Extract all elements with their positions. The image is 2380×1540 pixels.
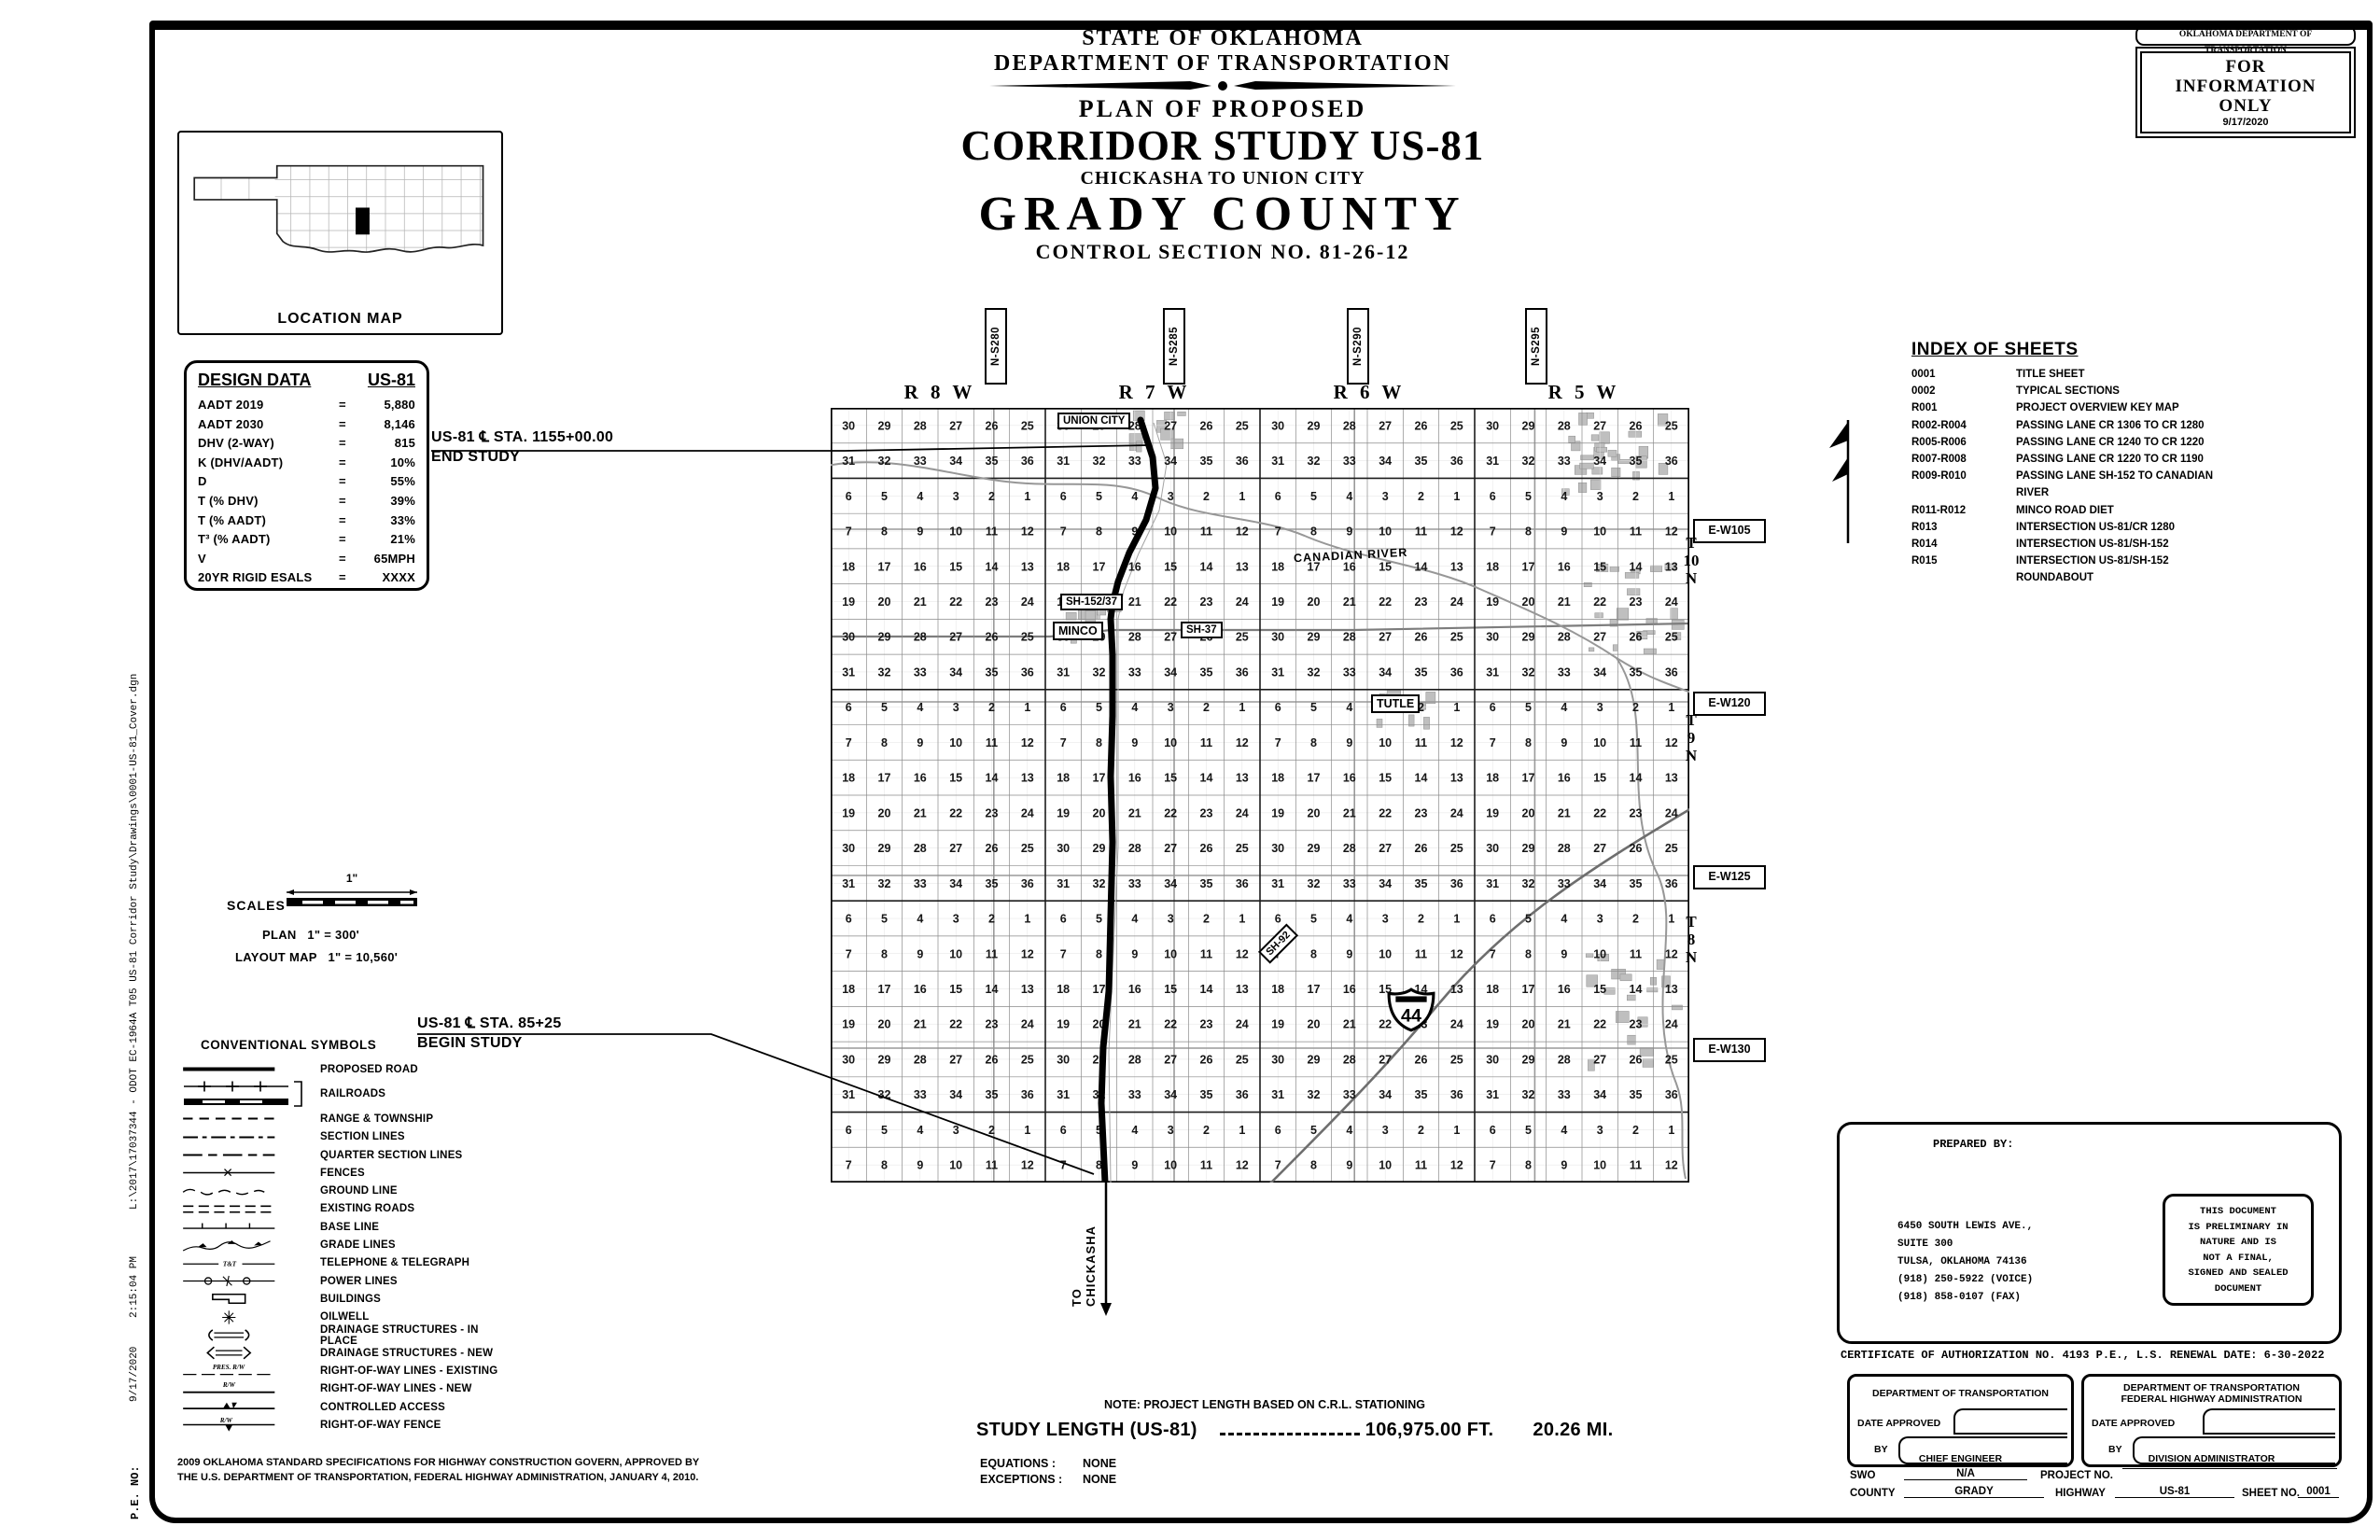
index-of-sheets: INDEX OF SHEETS 0001TITLE SHEET0002TYPIC… (1911, 340, 2219, 587)
ns-road-label: N-S280 (985, 308, 1007, 385)
row-existing-icon: PRES. R/W (180, 1363, 320, 1380)
section-number: 8 (1525, 1159, 1532, 1172)
county-value: GRADY (1904, 1486, 2044, 1498)
ns-road-text: N-S290 (1352, 327, 1364, 366)
section-number: 32 (1522, 455, 1535, 468)
section-number: 21 (1343, 595, 1356, 609)
section-number: 26 (986, 842, 999, 855)
section-number: 7 (1490, 525, 1496, 539)
section-number: 26 (1200, 419, 1213, 432)
legend-row: CONTROLLED ACCESS (180, 1398, 516, 1416)
section-number: 30 (1271, 1054, 1284, 1067)
section-number: 19 (1057, 1018, 1070, 1031)
section-number: 28 (1558, 1054, 1571, 1067)
section-number: 8 (1525, 525, 1532, 539)
legend-label: BASE LINE (320, 1222, 379, 1233)
section-number: 30 (1486, 419, 1499, 432)
prepared-by-box: PREPARED BY: 6450 SOUTH LEWIS AVE.,SUITE… (1837, 1122, 2342, 1344)
section-number: 36 (1236, 1088, 1249, 1101)
legend-row: BUILDINGS (180, 1290, 516, 1308)
design-data-row: AADT 2030=8,146 (198, 415, 415, 435)
legend-row: GRADE LINES (180, 1236, 516, 1253)
design-data-label: K (DHV/AADT) (198, 454, 339, 473)
section-number: 6 (1060, 913, 1067, 926)
section-number: 34 (1379, 1088, 1392, 1101)
study-note: NOTE: PROJECT LENGTH BASED ON C.R.L. STA… (1104, 1398, 1425, 1411)
section-number: 23 (986, 806, 999, 819)
section-number: 27 (1593, 419, 1606, 432)
study-length-feet: 106,975.00 FT. (1365, 1420, 1494, 1441)
section-number: 25 (1665, 1054, 1678, 1067)
section-number: 36 (1665, 1088, 1678, 1101)
section-number: 3 (1168, 913, 1174, 926)
section-number: 12 (1236, 736, 1249, 749)
design-data-label: AADT 2030 (198, 415, 339, 435)
design-data-table: DESIGN DATA US-81 AADT 2019=5,880AADT 20… (184, 360, 429, 591)
section-number: 28 (1558, 419, 1571, 432)
section-number: 35 (1200, 455, 1213, 468)
section-number: 21 (1558, 1018, 1571, 1031)
highway-label: HIGHWAY (2055, 1488, 2106, 1499)
svg-text:R/W: R/W (219, 1418, 233, 1425)
controlled-access-icon (180, 1398, 320, 1416)
design-data-value: 55% (354, 472, 415, 492)
section-number: 5 (1310, 1124, 1317, 1137)
section-number: 3 (953, 913, 959, 926)
section-number: 1 (1453, 701, 1460, 714)
section-number: 18 (1486, 983, 1499, 996)
legend-row: SECTION LINES (180, 1128, 516, 1146)
section-number: 18 (1486, 772, 1499, 785)
section-number: 10 (949, 1159, 962, 1172)
legend-label: EXISTING ROADS (320, 1203, 414, 1214)
union-city-label: UNION CITY (1057, 413, 1130, 429)
section-number: 35 (1630, 1088, 1643, 1101)
begin-study-text: BEGIN STUDY (417, 1033, 562, 1053)
index-sheet-number: R005-R006 (1911, 434, 2016, 451)
section-number: 7 (1060, 1159, 1067, 1172)
section-number: 15 (1164, 772, 1177, 785)
section-number: 35 (986, 666, 999, 679)
certificate-of-authorization: CERTIFICATE OF AUTHORIZATION NO. 4193 P.… (1841, 1349, 2345, 1362)
equations-value: NONE (1083, 1457, 1116, 1470)
design-data-value: 21% (354, 530, 415, 550)
legend-label: FENCES (320, 1168, 365, 1179)
section-number: 20 (1308, 806, 1321, 819)
section-number: 14 (1200, 560, 1213, 573)
section-number: 1 (1239, 701, 1245, 714)
section-number: 4 (1131, 490, 1138, 503)
section-number: 5 (1310, 913, 1317, 926)
disclaimer-line: NATURE AND IS (2165, 1235, 2311, 1251)
title-plan-of: PLAN OF PROPOSED (840, 95, 1605, 123)
section-number: 9 (1561, 736, 1567, 749)
section-number: 32 (1308, 666, 1321, 679)
exceptions-label: EXCEPTIONS : (980, 1473, 1083, 1486)
begin-study-station: US-81 ℄ STA. 85+25 (417, 1014, 562, 1033)
project-no-value (2122, 1468, 2337, 1469)
section-number: 9 (1131, 947, 1138, 960)
fhwa-date-field (2203, 1408, 2335, 1435)
section-number: 20 (878, 1018, 891, 1031)
title-block: STATE OF OKLAHOMA DEPARTMENT OF TRANSPOR… (840, 26, 1605, 264)
section-number: 16 (914, 560, 927, 573)
section-number: 24 (1021, 595, 1034, 609)
section-number: 21 (1343, 806, 1356, 819)
section-number: 12 (1021, 1159, 1034, 1172)
section-number: 3 (1597, 1124, 1603, 1137)
section-number: 28 (1128, 1054, 1141, 1067)
section-number: 17 (878, 772, 891, 785)
section-number: 26 (1200, 842, 1213, 855)
section-number: 10 (1164, 1159, 1177, 1172)
address-line: (918) 250-5922 (VOICE) (1897, 1271, 2033, 1289)
section-number: 5 (881, 1124, 888, 1137)
section-number: 3 (1597, 913, 1603, 926)
section-number: 14 (1200, 772, 1213, 785)
section-number: 13 (1021, 772, 1034, 785)
title-control-section: CONTROL SECTION NO. 81-26-12 (840, 240, 1605, 264)
section-number: 10 (1379, 1159, 1392, 1172)
section-number: 10 (1593, 525, 1606, 539)
stamp-text-line: FOR (2142, 57, 2349, 77)
section-number: 7 (1490, 947, 1496, 960)
section-number: 29 (1522, 419, 1535, 432)
oklahoma-state-map (191, 146, 490, 286)
odot-date-approved-label: DATE APPROVED (1857, 1418, 1940, 1429)
section-number: 10 (1164, 736, 1177, 749)
disclaimer-line: SIGNED AND SEALED (2165, 1266, 2311, 1281)
index-row: R002-R004PASSING LANE CR 1306 TO CR 1280 (1911, 417, 2219, 434)
for-information-only-stamp: FORINFORMATIONONLY 9/17/2020 (2135, 47, 2356, 138)
chickasha-label: CHICKASHA (1084, 1197, 1098, 1307)
section-number: 1 (1453, 490, 1460, 503)
section-number: 28 (1343, 842, 1356, 855)
section-number: 32 (878, 1088, 891, 1101)
section-number: 30 (842, 419, 855, 432)
section-number: 6 (1275, 490, 1281, 503)
section-number: 8 (881, 736, 888, 749)
legend-row: QUARTER SECTION LINES (180, 1146, 516, 1164)
section-number: 25 (1021, 419, 1034, 432)
legend-label: QUARTER SECTION LINES (320, 1150, 462, 1161)
section-number: 2 (1418, 913, 1424, 926)
section-number: 34 (1164, 666, 1177, 679)
section-number: 1 (1668, 913, 1674, 926)
section-number: 27 (1593, 842, 1606, 855)
section-number: 35 (1415, 877, 1428, 890)
odot-approval-box: DEPARTMENT OF TRANSPORTATION DATE APPROV… (1847, 1374, 2074, 1467)
section-number: 22 (1593, 806, 1606, 819)
section-number: 9 (917, 947, 923, 960)
section-number: 6 (846, 701, 852, 714)
section-number: 2 (1632, 701, 1639, 714)
section-number: 13 (1665, 983, 1678, 996)
section-number: 32 (878, 877, 891, 890)
section-number: 11 (1630, 947, 1642, 960)
section-number: 34 (1593, 455, 1606, 468)
section-number: 30 (1057, 842, 1070, 855)
design-data-title: DESIGN DATA (198, 371, 311, 390)
section-number: 25 (1665, 842, 1678, 855)
equals-sign: = (339, 434, 354, 454)
section-number: 33 (1558, 666, 1571, 679)
index-sheet-number: R014 (1911, 536, 2016, 553)
stamp-date: 9/17/2020 (2142, 117, 2349, 128)
stamp-agency-bar: OKLAHOMA DEPARTMENT OF TRANSPORTATION (2135, 25, 2356, 46)
section-number: 1 (1024, 913, 1030, 926)
section-number: 31 (1271, 1088, 1284, 1101)
section-number: 11 (1415, 525, 1427, 539)
section-number: 34 (1164, 877, 1177, 890)
index-sheet-number: R007-R008 (1911, 451, 2016, 468)
section-number: 30 (1486, 631, 1499, 644)
section-number: 16 (1343, 772, 1356, 785)
section-number: 13 (1021, 560, 1034, 573)
section-number: 17 (1093, 983, 1106, 996)
section-number: 24 (1665, 806, 1678, 819)
section-number: 29 (878, 631, 891, 644)
section-number: 35 (1200, 666, 1213, 679)
title-main: CORRIDOR STUDY US-81 (840, 123, 1605, 168)
index-sheet-desc: MINCO ROAD DIET (2016, 502, 2219, 519)
address-line: (918) 858-0107 (FAX) (1897, 1289, 2033, 1307)
fences-icon (180, 1164, 320, 1182)
design-data-label: AADT 2019 (198, 396, 339, 415)
section-number: 4 (1561, 490, 1567, 503)
oilwell-icon (180, 1309, 320, 1326)
section-number: 2 (1632, 1124, 1639, 1137)
section-number: 32 (1093, 666, 1106, 679)
section-number: 31 (1486, 1088, 1499, 1101)
section-number: 27 (1593, 1054, 1606, 1067)
section-number: 15 (949, 772, 962, 785)
section-number: 12 (1236, 525, 1249, 539)
disclaimer-line: NOT A FINAL, (2165, 1251, 2311, 1267)
section-number: 30 (1057, 1054, 1070, 1067)
design-data-label: T (% DHV) (198, 492, 339, 511)
township-text: 10 (1676, 552, 1706, 569)
township-label: T10N (1676, 534, 1706, 587)
section-number: 33 (1558, 1088, 1571, 1101)
section-number: 9 (1346, 1159, 1352, 1172)
stamp-text-line: INFORMATION (2142, 77, 2349, 96)
key-map-svg: 3029282726253029282726253029282726253029… (831, 408, 1689, 1183)
margin-file-path: L:\2017\17037344 - ODOT EC-1964A T05 US-… (129, 674, 140, 1210)
odot-title: DEPARTMENT OF TRANSPORTATION (1850, 1388, 2071, 1399)
section-number: 6 (1275, 1124, 1281, 1137)
section-number: 22 (1593, 595, 1606, 609)
section-number: 26 (1630, 419, 1643, 432)
design-data-row: DHV (2-WAY)=815 (198, 434, 415, 454)
design-data-label: V (198, 550, 339, 569)
equals-sign: = (339, 396, 354, 415)
index-sheet-number: R011-R012 (1911, 502, 2016, 519)
section-number: 1 (1668, 490, 1674, 503)
section-number: 5 (1096, 913, 1102, 926)
section-number: 7 (1275, 525, 1281, 539)
section-number: 23 (1630, 595, 1643, 609)
section-number: 16 (1128, 772, 1141, 785)
scale-layout-label: LAYOUT MAP (235, 950, 317, 964)
legend-row: POWER LINES (180, 1272, 516, 1290)
section-number: 14 (1630, 983, 1643, 996)
conventional-symbols-title: CONVENTIONAL SYMBOLS (201, 1038, 376, 1052)
section-number: 28 (1343, 631, 1356, 644)
section-number: 22 (1164, 1018, 1177, 1031)
section-number: 25 (1665, 631, 1678, 644)
section-number: 35 (1415, 1088, 1428, 1101)
section-number: 34 (1593, 1088, 1606, 1101)
section-number: 27 (1379, 419, 1392, 432)
section-number: 8 (1525, 736, 1532, 749)
index-row: R005-R006PASSING LANE CR 1240 TO CR 1220 (1911, 434, 2219, 451)
exceptions-value: NONE (1083, 1473, 1116, 1486)
section-number: 24 (1236, 595, 1249, 609)
legend-label: RIGHT-OF-WAY FENCE (320, 1420, 441, 1431)
section-number: 13 (1021, 983, 1034, 996)
section-number: 12 (1021, 947, 1034, 960)
section-number: 13 (1665, 772, 1678, 785)
svg-text:T&T: T&T (223, 1260, 237, 1267)
section-number: 2 (988, 1124, 995, 1137)
section-number: 4 (1561, 1124, 1567, 1137)
section-number: 27 (949, 1054, 962, 1067)
section-number: 32 (1308, 455, 1321, 468)
prepared-by-label: PREPARED BY: (1933, 1138, 2013, 1151)
section-number: 9 (917, 525, 923, 539)
section-number: 22 (1379, 595, 1392, 609)
section-number: 8 (881, 947, 888, 960)
section-number: 25 (1450, 419, 1463, 432)
section-number: 35 (1630, 455, 1643, 468)
section-number: 2 (1632, 490, 1639, 503)
section-number: 8 (1096, 525, 1102, 539)
section-number: 32 (1522, 1088, 1535, 1101)
section-number: 7 (846, 947, 852, 960)
section-number: 14 (986, 560, 999, 573)
study-length-row: STUDY LENGTH (US-81) 106,975.00 FT. 20.2… (976, 1420, 1614, 1441)
section-number: 33 (914, 877, 927, 890)
equals-sign: = (339, 454, 354, 473)
section-number: 5 (1096, 490, 1102, 503)
disclaimer-line: THIS DOCUMENT (2165, 1204, 2311, 1220)
index-row: R013INTERSECTION US-81/CR 1280 (1911, 519, 2219, 536)
address-line: TULSA, OKLAHOMA 74136 (1897, 1253, 2033, 1271)
section-number: 29 (1522, 631, 1535, 644)
section-number: 29 (878, 842, 891, 855)
section-number: 15 (1379, 560, 1392, 573)
township-text: N (1676, 948, 1706, 966)
section-number: 3 (953, 490, 959, 503)
section-number: 25 (1236, 842, 1249, 855)
section-number: 27 (1379, 631, 1392, 644)
section-number: 33 (914, 666, 927, 679)
section-number: 28 (914, 842, 927, 855)
section-number: 9 (1131, 1159, 1138, 1172)
section-number: 22 (949, 1018, 962, 1031)
section-number: 14 (1630, 772, 1643, 785)
section-number: 11 (986, 525, 998, 539)
minco-label: MINCO (1053, 622, 1103, 640)
address-line: SUITE 300 (1897, 1236, 2033, 1253)
chief-engineer-label: CHIEF ENGINEER (1850, 1453, 2071, 1464)
section-number: 17 (1522, 772, 1535, 785)
index-sheet-desc: PASSING LANE SH-152 TO CANADIAN RIVER (2016, 468, 2219, 501)
section-number: 5 (881, 701, 888, 714)
range-label: R 5 W (1548, 381, 1617, 404)
section-number: 30 (1486, 1054, 1499, 1067)
section-number: 31 (1271, 455, 1284, 468)
section-number: 21 (1128, 595, 1141, 609)
section-number: 27 (1164, 419, 1177, 432)
index-title: INDEX OF SHEETS (1911, 340, 2219, 360)
section-number: 13 (1236, 983, 1249, 996)
section-number: 22 (949, 595, 962, 609)
section-number: 28 (1558, 631, 1571, 644)
section-number: 21 (914, 1018, 927, 1031)
section-number: 24 (1450, 595, 1463, 609)
township-label: T8N (1676, 913, 1706, 966)
section-number: 11 (1630, 736, 1642, 749)
section-number: 16 (1128, 560, 1141, 573)
index-sheet-desc: INTERSECTION US-81/SH-152 ROUNDABOUT (2016, 553, 2219, 586)
index-sheet-desc: PASSING LANE CR 1220 TO CR 1190 (2016, 451, 2219, 468)
section-number: 36 (1450, 877, 1463, 890)
location-map: LOCATION MAP (177, 131, 503, 335)
section-number: 23 (986, 1018, 999, 1031)
section-number: 31 (1271, 877, 1284, 890)
section-number: 10 (1164, 525, 1177, 539)
section-number: 24 (1236, 806, 1249, 819)
section-number: 17 (1308, 983, 1321, 996)
section-number: 34 (1379, 877, 1392, 890)
section-number: 3 (1382, 913, 1389, 926)
section-number: 1 (1239, 490, 1245, 503)
index-sheet-number: 0002 (1911, 383, 2016, 399)
section-number: 6 (1275, 913, 1281, 926)
township-label: T9N (1676, 711, 1706, 764)
ew-road-label: E-W125 (1693, 865, 1766, 889)
equals-sign: = (339, 492, 354, 511)
section-number: 15 (949, 983, 962, 996)
section-number: 2 (1418, 1124, 1424, 1137)
row-fence-icon: R/W (180, 1416, 320, 1434)
design-data-value: 33% (354, 511, 415, 531)
section-number: 21 (914, 595, 927, 609)
section-number: 8 (1096, 947, 1102, 960)
section-number: 13 (1236, 772, 1249, 785)
section-number: 16 (1558, 772, 1571, 785)
section-number: 17 (1093, 560, 1106, 573)
section-number: 13 (1236, 560, 1249, 573)
section-number: 8 (1310, 1159, 1317, 1172)
section-number: 18 (842, 560, 855, 573)
section-number: 6 (1490, 1124, 1496, 1137)
section-number: 27 (1164, 1054, 1177, 1067)
quarter-section-lines-icon (180, 1146, 320, 1164)
section-number: 1 (1239, 1124, 1245, 1137)
index-sheet-desc: PROJECT OVERVIEW KEY MAP (2016, 399, 2219, 416)
disclaimer-line: DOCUMENT (2165, 1281, 2311, 1297)
section-number: 15 (949, 560, 962, 573)
index-row: R014INTERSECTION US-81/SH-152 (1911, 536, 2219, 553)
section-number: 12 (1450, 525, 1463, 539)
section-number: 7 (1490, 736, 1496, 749)
design-data-row: V=65MPH (198, 550, 415, 569)
section-number: 6 (1060, 701, 1067, 714)
section-number: 27 (1379, 1054, 1392, 1067)
